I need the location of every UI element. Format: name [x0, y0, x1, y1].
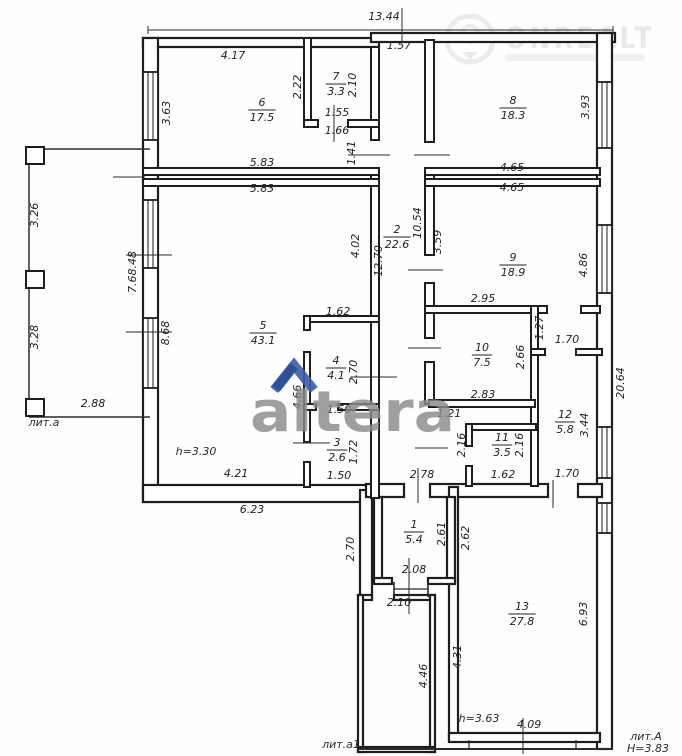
interior-wall	[304, 38, 311, 126]
dimension-label: 2.16	[455, 433, 468, 458]
room-label: 222.6	[383, 223, 410, 251]
room-area: 5.8	[556, 423, 574, 436]
room-label: 1327.8	[508, 600, 535, 628]
dimension-label: 1.41	[345, 141, 358, 166]
terrace-post	[26, 399, 44, 416]
dimension-label: 1.62	[491, 468, 516, 481]
interior-wall	[304, 316, 310, 330]
exterior-wall	[358, 595, 363, 752]
room-area: 2.6	[328, 451, 346, 464]
room-area: 43.1	[251, 334, 276, 347]
room-number: 1	[411, 518, 418, 531]
interior-wall	[466, 466, 472, 486]
room-number: 5	[260, 319, 267, 332]
terrace-post	[26, 271, 44, 288]
dimension-label: 8.68	[159, 321, 172, 346]
room-area: 17.5	[250, 111, 275, 124]
interior-wall	[425, 306, 547, 313]
room-area: 27.8	[510, 615, 535, 628]
room-label: 113.5	[492, 431, 512, 459]
dimension-label: 1.27	[533, 316, 546, 341]
window	[597, 427, 612, 478]
room-number: 6	[259, 96, 266, 109]
window	[143, 200, 158, 268]
exterior-wall	[578, 484, 602, 497]
interior-wall	[581, 306, 600, 313]
dimension-label: 4.65	[500, 181, 525, 194]
ceiling-height-note: h=3.30	[176, 445, 217, 458]
dimension-label: 20.64	[614, 367, 627, 399]
exterior-wall	[428, 578, 455, 584]
room-number: 12	[558, 408, 572, 421]
interior-wall	[425, 40, 434, 142]
dimension-label: 2.16	[513, 433, 526, 458]
window	[597, 225, 612, 293]
dimension-label: 1.57	[387, 39, 412, 52]
window	[143, 72, 158, 140]
dimension-label: 3.28	[28, 325, 41, 350]
interior-wall	[304, 462, 310, 487]
dimension-label: 3.93	[579, 95, 592, 120]
building-letter-label: лит.а	[28, 416, 60, 429]
interior-wall	[304, 120, 318, 127]
room-area: 22.6	[385, 238, 410, 251]
room-number: 9	[510, 251, 517, 264]
room-label: 543.1	[249, 319, 276, 347]
dimension-label: 3.44	[578, 413, 591, 438]
dimension-label: 2.88	[81, 397, 106, 410]
dimension-label: 3.59	[431, 230, 444, 255]
room-number: 2	[394, 223, 401, 236]
interior-wall	[466, 424, 536, 430]
dimension-label: 1.55	[325, 106, 350, 119]
room-area: 7.5	[473, 356, 491, 369]
dimension-label: 1.70	[555, 333, 580, 346]
interior-wall	[576, 349, 602, 355]
room-label: 125.8	[555, 408, 575, 436]
room-area: 18.3	[501, 109, 526, 122]
exterior-wall	[430, 595, 435, 752]
room-label: 44.1	[326, 354, 346, 382]
dimension-label: 2.66	[514, 345, 527, 370]
dimension-label: 2.61	[435, 522, 448, 547]
dimension-label: 4.46	[417, 664, 430, 689]
window	[597, 503, 612, 533]
room-label: 617.5	[248, 96, 275, 124]
dimension-label: 4.21	[224, 467, 249, 480]
dimension-label: 5.83	[250, 182, 275, 195]
room-area: 18.9	[501, 266, 526, 279]
dimension-label: 2.70	[344, 537, 357, 562]
dimension-label: 7.68.48	[126, 251, 139, 293]
dimension-label: 6.93	[577, 602, 590, 627]
window	[597, 82, 612, 148]
room-area: 5.4	[405, 533, 423, 546]
dimension-label: 4.86	[577, 253, 590, 278]
room-label: 818.3	[499, 94, 526, 122]
exterior-wall	[374, 497, 382, 582]
onrealt-watermark-subtext	[505, 54, 645, 61]
exterior-wall	[143, 485, 379, 502]
room-area: 3.3	[327, 85, 345, 98]
dimension-label: 3.63	[160, 101, 173, 126]
dimension-label: 2.22	[291, 75, 304, 100]
room-label: 15.4	[404, 518, 424, 546]
building-letter-label: Н=3.83	[627, 742, 669, 755]
dimension-label: 2.83	[471, 388, 496, 401]
building-letter-label: лит.а1	[321, 738, 360, 751]
dimension-label: 4.02	[349, 234, 362, 259]
exterior-wall	[360, 490, 372, 599]
dimension-label: 1.50	[327, 469, 352, 482]
room-number: 4	[333, 354, 340, 367]
room-number: 8	[510, 94, 517, 107]
room-label: 73.3	[326, 70, 346, 98]
interior-wall	[348, 120, 379, 127]
room-label: 918.9	[499, 251, 526, 279]
room-number: 13	[515, 600, 529, 613]
room-area: 3.5	[493, 446, 511, 459]
dimension-label: 13.44	[368, 10, 400, 23]
exterior-wall	[374, 578, 392, 584]
dimension-label: 4.65	[500, 161, 525, 174]
room-label: 107.5	[472, 341, 492, 369]
exterior-wall	[449, 733, 600, 742]
exterior-wall	[447, 497, 455, 582]
floor-plan-canvas: ONREALT13.441.574.172.222.101.551.661.41…	[0, 0, 682, 756]
interior-wall	[531, 349, 545, 355]
dimension-label: 2.10	[346, 73, 359, 98]
dimension-label: 1.70	[555, 467, 580, 480]
dimension-label: 4.17	[221, 49, 246, 62]
dimension-label: 6.23	[240, 503, 265, 516]
terrace-post	[26, 147, 44, 164]
ceiling-height-note: h=3.63	[459, 712, 500, 725]
room-number: 10	[475, 341, 489, 354]
room-number: 7	[333, 70, 340, 83]
dimension-label: 2.62	[459, 526, 472, 551]
dimension-label: 4.09	[517, 718, 542, 731]
dimension-label: 1.66	[325, 124, 350, 137]
dimension-label: 1.62	[326, 305, 351, 318]
dimension-label: 2.10	[387, 596, 412, 609]
dimension-label: 2.95	[471, 292, 496, 305]
interior-wall	[143, 168, 379, 175]
dimension-label: 2.08	[402, 563, 427, 576]
altera-watermark-text: altera	[250, 380, 455, 445]
window	[143, 318, 158, 388]
dimension-label: 3.26	[28, 203, 41, 228]
room-number: 11	[495, 431, 509, 444]
dimension-label: 12.70	[372, 245, 385, 277]
dimension-label: 2.78	[410, 468, 435, 481]
floor-plan-document: ONREALT13.441.574.172.222.101.551.661.41…	[0, 0, 682, 756]
interior-wall	[371, 168, 379, 498]
dimension-label: 10.54	[411, 207, 424, 239]
dimension-label: 5.83	[250, 156, 275, 169]
exterior-wall	[143, 38, 379, 47]
dimension-label: 4.31	[451, 645, 464, 670]
